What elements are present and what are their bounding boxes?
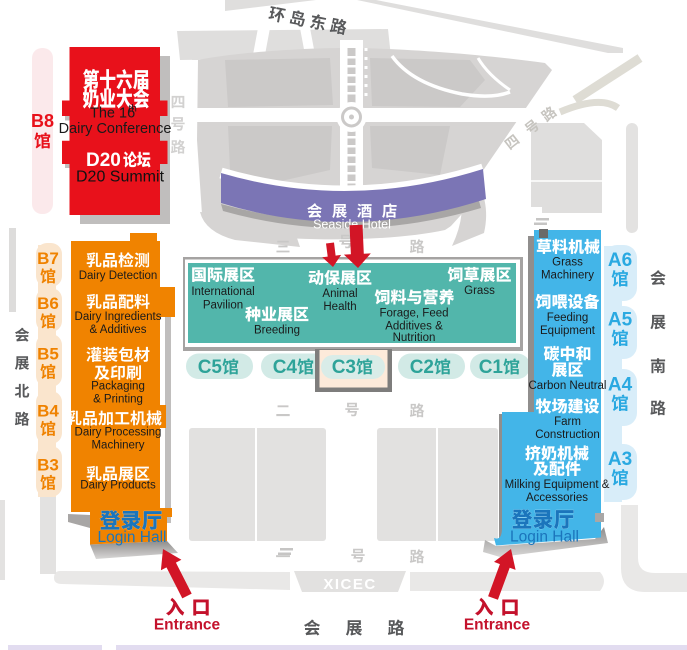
svg-text:C5: C5 — [198, 357, 223, 378]
svg-text:Nutrition: Nutrition — [393, 332, 436, 344]
svg-text:Dairy Conference: Dairy Conference — [59, 121, 172, 137]
svg-text:Machinery: Machinery — [541, 270, 594, 282]
svg-text:Additives &: Additives & — [385, 321, 443, 333]
svg-text:Login Hall: Login Hall — [510, 529, 579, 546]
svg-text:Entrance: Entrance — [464, 617, 531, 634]
svg-text:B3: B3 — [37, 456, 59, 475]
svg-text:A4: A4 — [608, 375, 633, 396]
svg-text:XICEC: XICEC — [323, 576, 376, 593]
svg-text:Farm: Farm — [554, 416, 581, 428]
svg-text:Grass: Grass — [464, 285, 495, 297]
svg-text:Equipment: Equipment — [540, 325, 596, 337]
svg-text:& Additives: & Additives — [90, 324, 147, 336]
svg-text:B8: B8 — [31, 111, 54, 131]
svg-text:Machinery: Machinery — [91, 440, 144, 452]
svg-text:Accessories: Accessories — [526, 492, 588, 504]
svg-text:Pavilion: Pavilion — [203, 300, 243, 312]
svg-text:International: International — [191, 286, 254, 298]
svg-text:Milking Equipment &: Milking Equipment & — [505, 479, 610, 491]
svg-text:Forage, Feed: Forage, Feed — [379, 308, 448, 320]
svg-text:Dairy Ingredients: Dairy Ingredients — [75, 311, 162, 323]
svg-text:& Printing: & Printing — [93, 394, 143, 406]
svg-text:D20 Summit: D20 Summit — [76, 169, 165, 186]
svg-text:Construction: Construction — [535, 429, 600, 441]
svg-text:B7: B7 — [37, 249, 59, 268]
svg-text:C1: C1 — [479, 357, 504, 378]
svg-text:th: th — [129, 104, 137, 115]
svg-text:C4: C4 — [273, 357, 298, 378]
svg-text:Grass: Grass — [552, 257, 583, 269]
svg-text:Feeding: Feeding — [547, 312, 589, 324]
svg-text:Dairy Processing: Dairy Processing — [75, 427, 162, 439]
svg-text:Login Hall: Login Hall — [98, 529, 167, 546]
svg-text:B4: B4 — [37, 402, 59, 421]
svg-text:C3: C3 — [332, 357, 356, 378]
svg-text:A5: A5 — [608, 310, 633, 331]
svg-text:Dairy Products: Dairy Products — [80, 480, 156, 492]
svg-text:Health: Health — [323, 301, 356, 313]
svg-text:Breeding: Breeding — [254, 325, 300, 337]
svg-text:Dairy Detection: Dairy Detection — [79, 270, 158, 282]
svg-text:Animal: Animal — [322, 288, 357, 300]
svg-text:C2: C2 — [410, 357, 434, 378]
svg-text:Carbon Neutral: Carbon Neutral — [529, 380, 607, 392]
svg-text:A3: A3 — [608, 449, 632, 470]
svg-text:B5: B5 — [37, 345, 59, 364]
svg-text:Packaging: Packaging — [91, 381, 145, 393]
svg-text:Entrance: Entrance — [154, 617, 221, 634]
svg-text:B6: B6 — [37, 294, 59, 313]
svg-text:A6: A6 — [608, 250, 632, 271]
